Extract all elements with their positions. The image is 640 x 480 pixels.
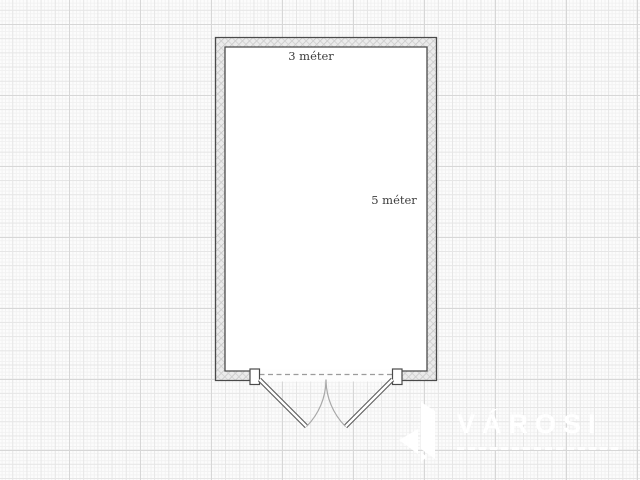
door-swing-arc-left <box>307 380 327 427</box>
room-floor <box>225 47 427 371</box>
floorplan-canvas: 3 méter 5 méter VÁROSI <box>0 0 640 480</box>
door-jamb-right <box>393 369 403 385</box>
door-leaf-right-core <box>346 380 393 427</box>
door-leaf-left-core <box>260 380 307 427</box>
room-length-label: 5 méter <box>371 193 417 207</box>
room-width-label: 3 méter <box>288 49 334 63</box>
floorplan-drawing: 3 méter 5 méter <box>0 0 640 480</box>
door-swing-arc-right <box>326 380 346 427</box>
door-jamb-left <box>250 369 260 385</box>
